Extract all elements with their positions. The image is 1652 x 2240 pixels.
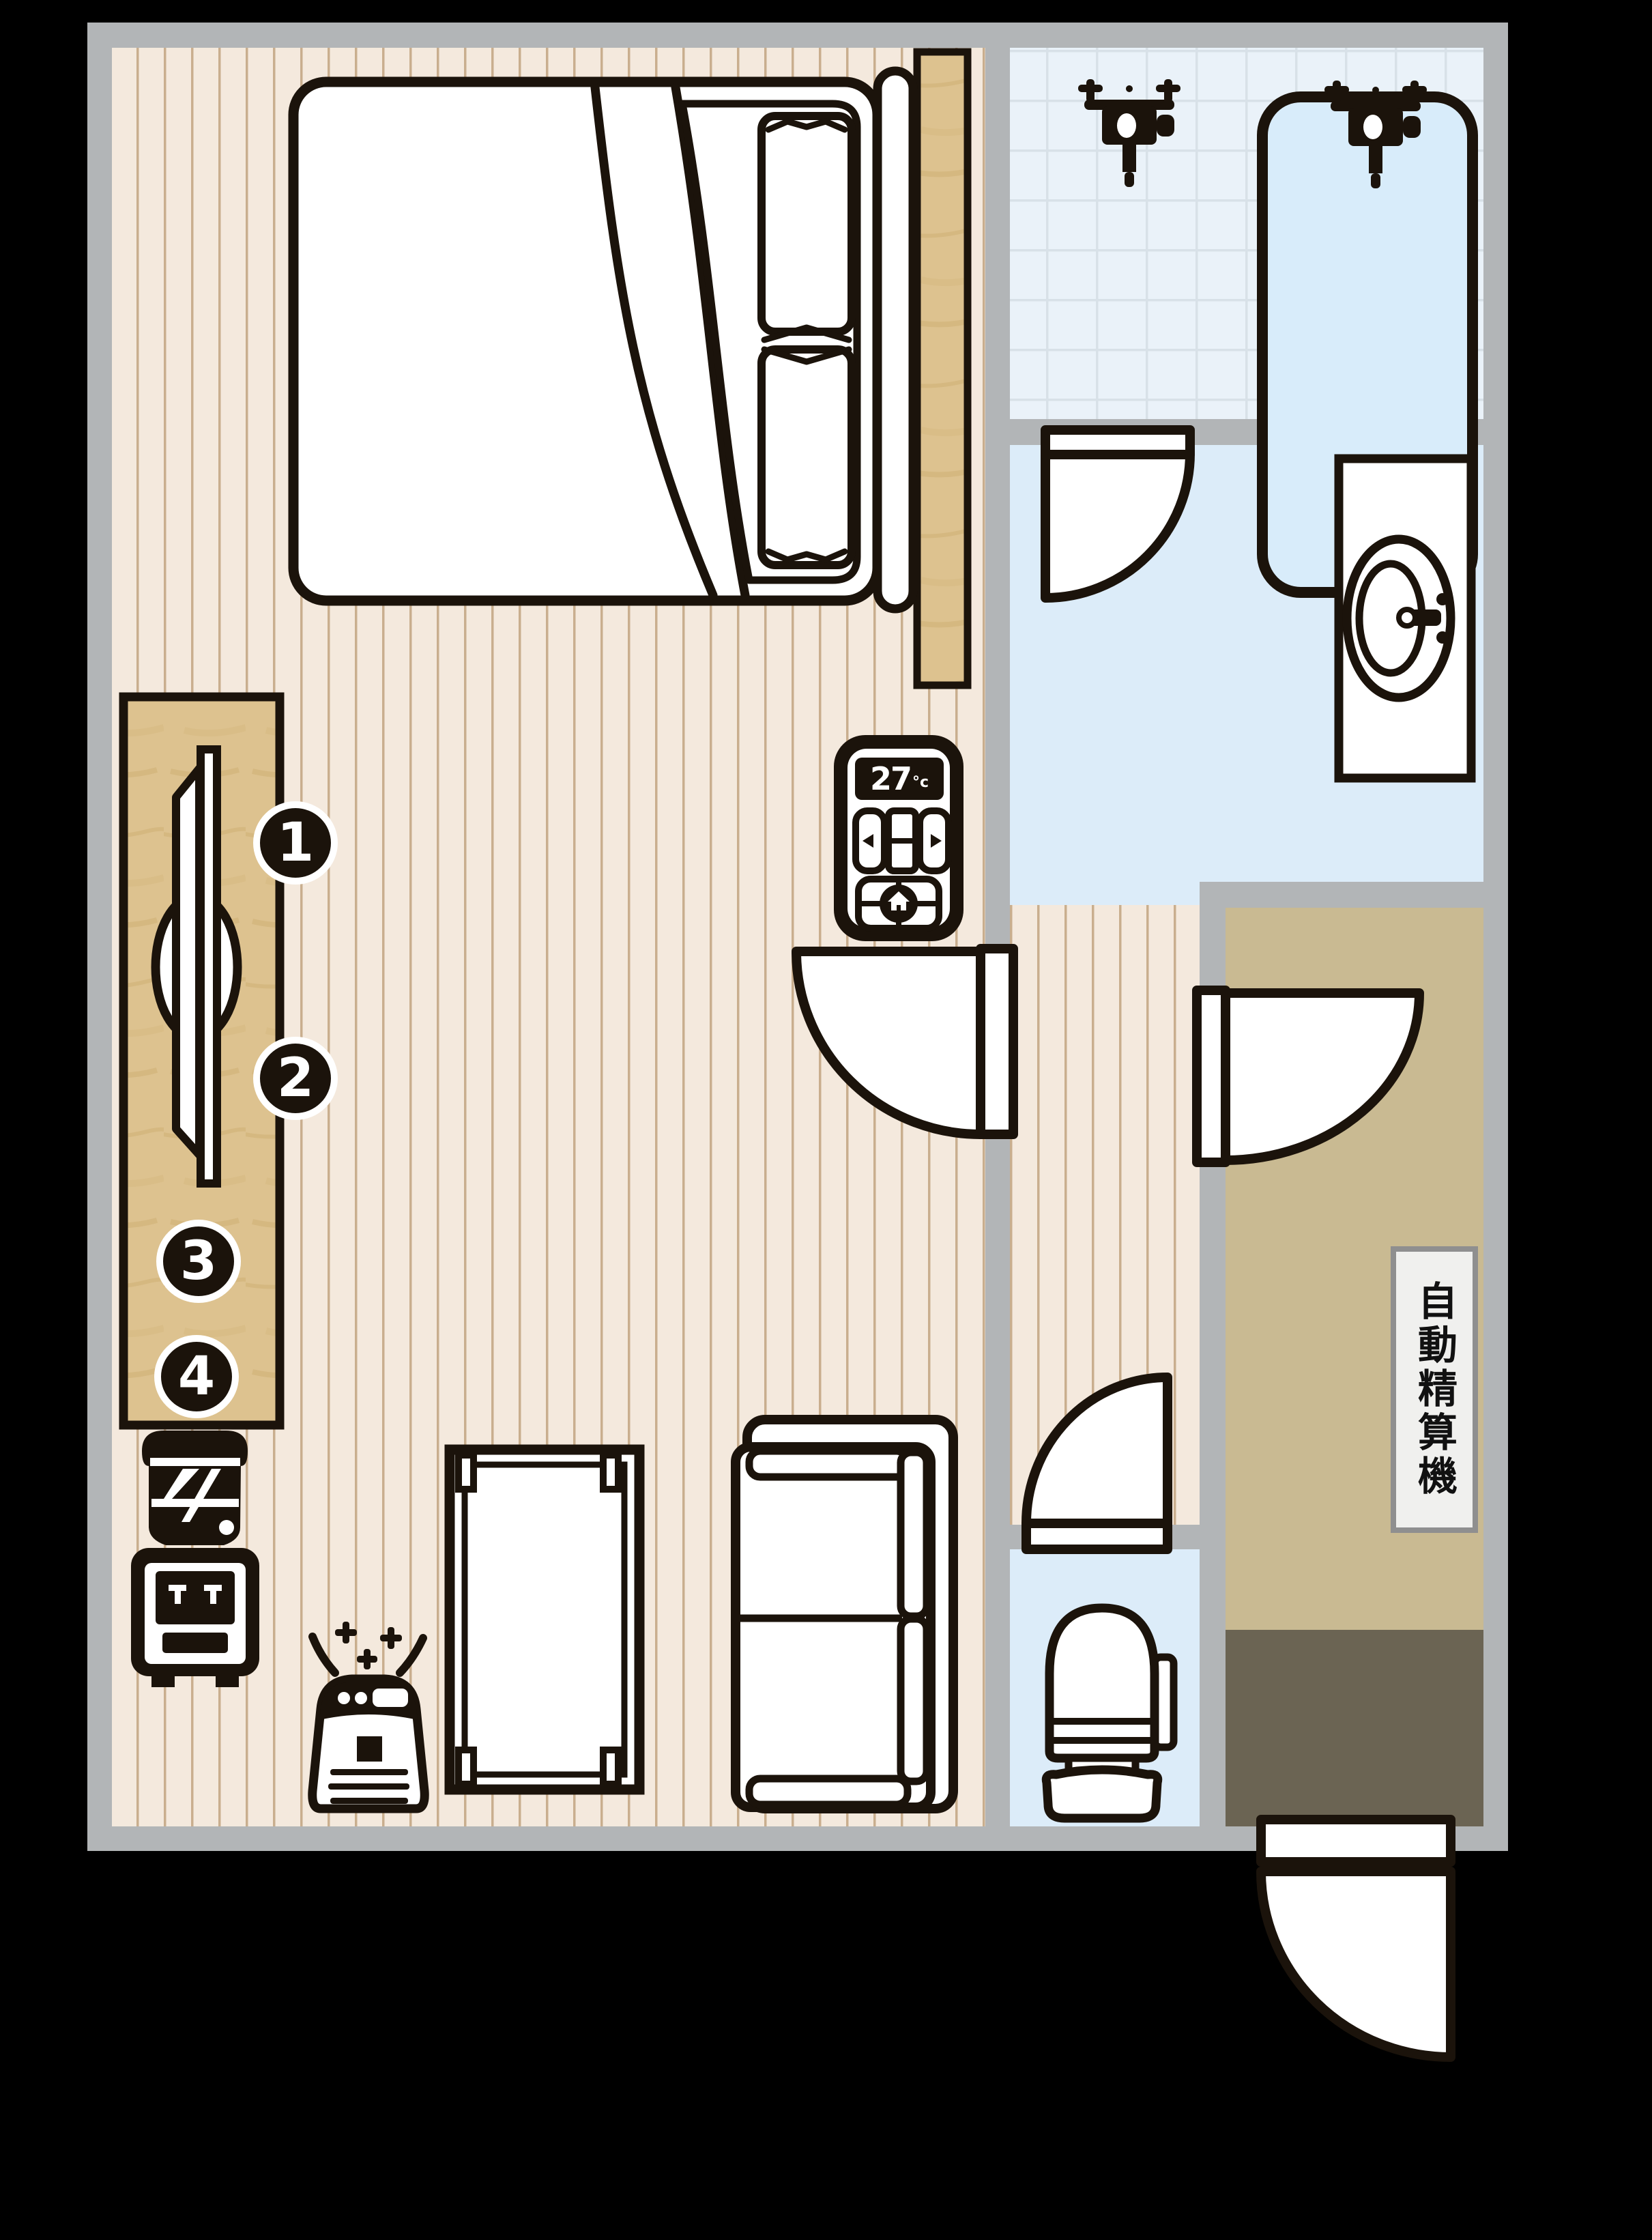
table bbox=[450, 1450, 639, 1790]
entrance-door bbox=[1261, 1820, 1451, 2057]
marker-1: 1 bbox=[253, 801, 338, 885]
marker-1-label: 1 bbox=[277, 816, 314, 870]
hotel-room-floorplan: 1 2 3 4 27 °c 自動精算機 bbox=[0, 0, 1652, 2240]
marker-2: 2 bbox=[253, 1037, 338, 1120]
entry-genkan-floor bbox=[1226, 1630, 1483, 1826]
ac-temperature-display: 27 °c bbox=[855, 758, 944, 800]
marker-4: 4 bbox=[154, 1335, 239, 1418]
vanity-sink bbox=[1339, 459, 1471, 778]
headboard bbox=[878, 71, 913, 609]
auto-checkout-sign: 自動精算機 bbox=[1391, 1246, 1478, 1533]
door-leaf bbox=[981, 949, 1013, 1134]
marker-3: 3 bbox=[156, 1220, 241, 1303]
water-dispenser-icon bbox=[131, 1431, 259, 1687]
closet-panel bbox=[917, 52, 968, 685]
door-leaf bbox=[1026, 1523, 1168, 1549]
auto-checkout-sign-label: 自動精算機 bbox=[1406, 1280, 1463, 1499]
door-leaf bbox=[1045, 430, 1190, 455]
bed bbox=[293, 71, 913, 609]
marker-4-label: 4 bbox=[178, 1350, 215, 1403]
marker-2-label: 2 bbox=[277, 1052, 314, 1105]
sofa bbox=[736, 1420, 953, 1809]
ac-temperature-value: 27 bbox=[870, 760, 911, 797]
marker-3-label: 3 bbox=[180, 1235, 217, 1288]
door-leaf bbox=[1197, 990, 1226, 1162]
door-swing bbox=[1261, 1871, 1451, 2057]
ac-temperature-unit: °c bbox=[912, 774, 929, 791]
door-leaf bbox=[1261, 1820, 1451, 1862]
